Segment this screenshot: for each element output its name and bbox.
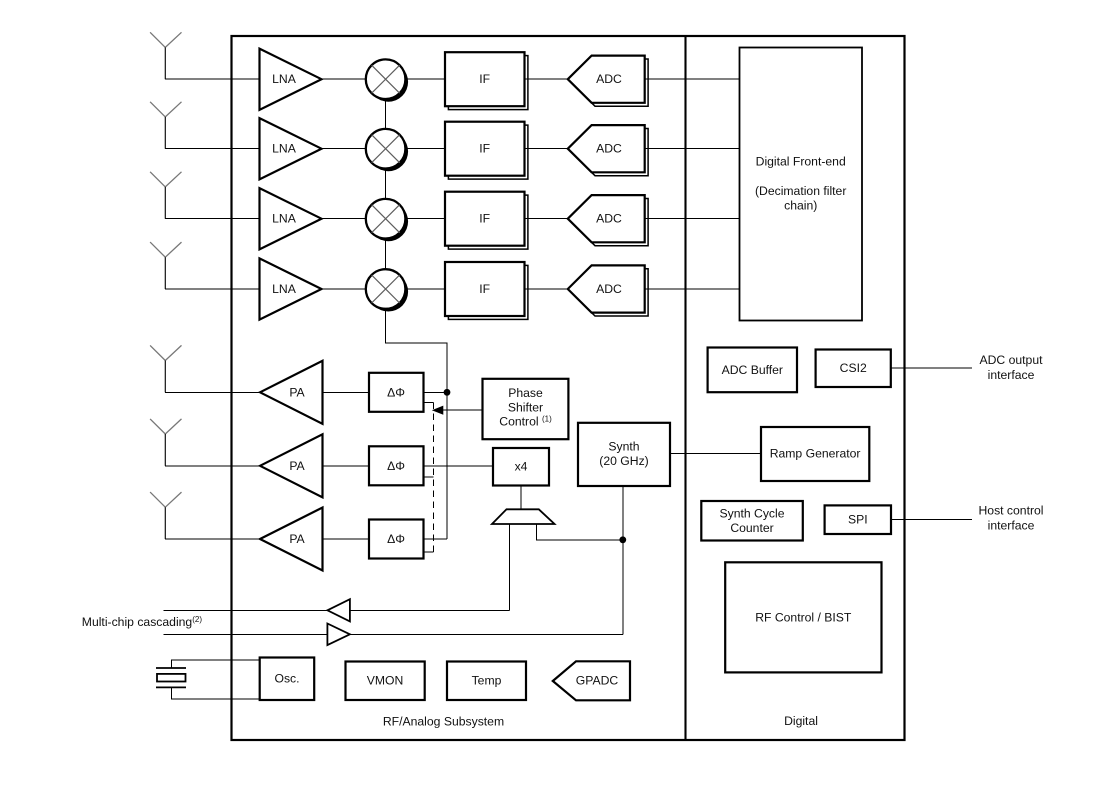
svg-text:ΔΦ: ΔΦ	[387, 459, 405, 473]
svg-text:IF: IF	[479, 72, 490, 86]
svg-text:PA: PA	[289, 532, 305, 546]
svg-text:LNA: LNA	[272, 72, 297, 86]
svg-text:ADC: ADC	[596, 142, 622, 156]
svg-text:IF: IF	[479, 212, 490, 226]
svg-text:interface: interface	[988, 518, 1035, 532]
svg-text:(20 GHz): (20 GHz)	[599, 454, 648, 468]
svg-text:ADC Buffer: ADC Buffer	[722, 363, 783, 377]
svg-text:LNA: LNA	[272, 282, 297, 296]
svg-text:chain): chain)	[784, 198, 817, 212]
svg-text:Ramp Generator: Ramp Generator	[770, 447, 861, 461]
svg-text:Counter: Counter	[730, 521, 773, 535]
svg-text:RF/Analog Subsystem: RF/Analog Subsystem	[383, 715, 504, 729]
svg-text:RF Control / BIST: RF Control / BIST	[755, 610, 852, 624]
svg-text:x4: x4	[515, 460, 528, 474]
svg-text:Synth: Synth	[608, 440, 639, 454]
svg-text:Temp: Temp	[472, 674, 502, 688]
svg-text:Osc.: Osc.	[274, 672, 299, 686]
svg-text:ΔΦ: ΔΦ	[387, 532, 405, 546]
svg-text:Digital: Digital	[784, 714, 818, 728]
svg-text:(Decimation filter: (Decimation filter	[755, 184, 846, 198]
svg-text:Phase: Phase	[508, 386, 543, 400]
svg-text:PA: PA	[289, 385, 305, 399]
svg-text:Digital Front-end: Digital Front-end	[756, 155, 846, 169]
svg-text:LNA: LNA	[272, 142, 297, 156]
svg-text:Shifter: Shifter	[508, 401, 543, 415]
svg-text:IF: IF	[479, 142, 490, 156]
svg-text:Synth Cycle: Synth Cycle	[719, 507, 784, 521]
svg-text:ΔΦ: ΔΦ	[387, 385, 405, 399]
svg-text:interface: interface	[988, 368, 1035, 382]
svg-text:Host control: Host control	[978, 503, 1043, 517]
svg-text:PA: PA	[289, 459, 305, 473]
svg-text:Multi-chip cascading(2): Multi-chip cascading(2)	[82, 615, 203, 629]
svg-text:ADC output: ADC output	[979, 353, 1043, 367]
svg-text:LNA: LNA	[272, 212, 297, 226]
svg-text:ADC: ADC	[596, 282, 622, 296]
svg-text:ADC: ADC	[596, 212, 622, 226]
svg-text:GPADC: GPADC	[576, 674, 619, 688]
svg-text:CSI2: CSI2	[840, 361, 867, 375]
svg-text:IF: IF	[479, 282, 490, 296]
svg-text:VMON: VMON	[367, 674, 404, 688]
svg-text:SPI: SPI	[848, 513, 868, 527]
svg-text:ADC: ADC	[596, 72, 622, 86]
